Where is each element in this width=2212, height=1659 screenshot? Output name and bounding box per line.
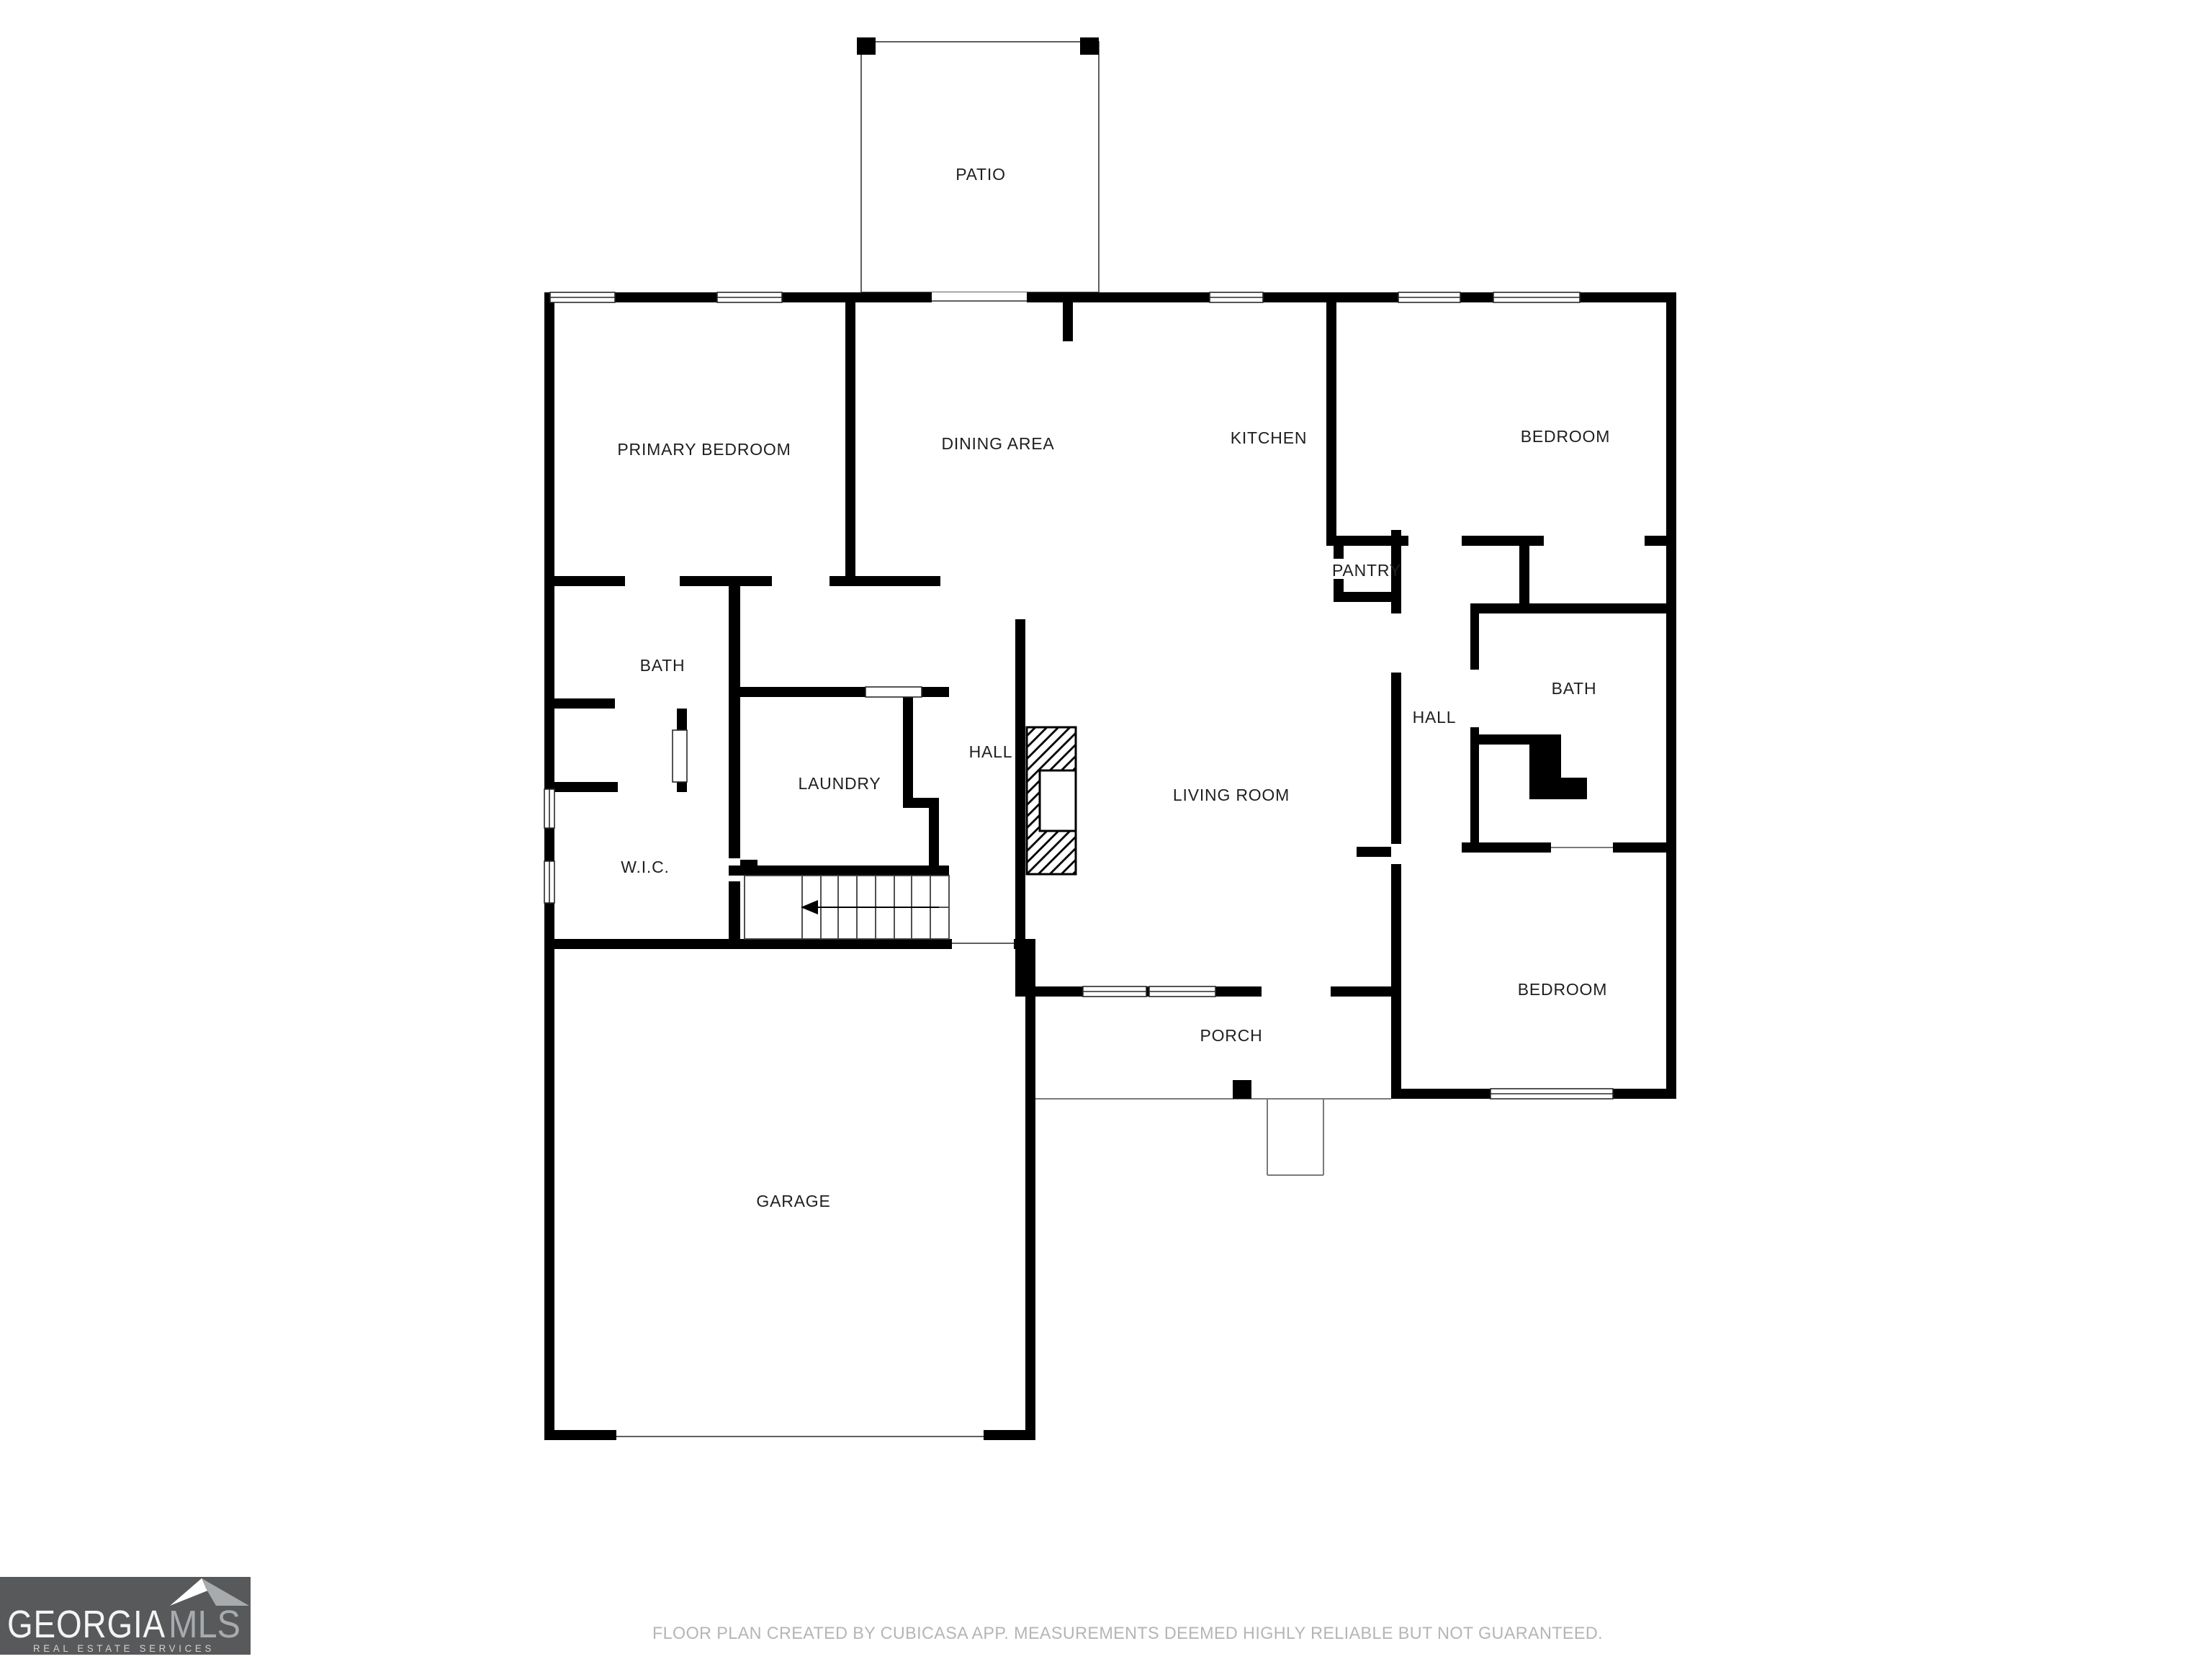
floor-plan-page: PATIO PRIMARY BEDROOM DINING AREA KITCHE… xyxy=(0,0,2212,1659)
room-label-laundry: LAUNDRY xyxy=(798,774,881,793)
window xyxy=(550,292,615,302)
room-label-bath-right: BATH xyxy=(1552,679,1597,698)
window xyxy=(1491,1089,1613,1099)
shower xyxy=(1529,734,1587,799)
patio-post-right xyxy=(1080,37,1099,55)
disclaimer-text: FLOOR PLAN CREATED BY CUBICASA APP. MEAS… xyxy=(652,1624,1603,1643)
room-label-porch: PORCH xyxy=(1200,1026,1262,1045)
window xyxy=(1493,292,1580,302)
entry-walkway xyxy=(1267,1099,1323,1175)
room-label-garage: GARAGE xyxy=(756,1192,830,1210)
window xyxy=(544,861,554,903)
porch-outline xyxy=(1035,1080,1391,1175)
floor-plan-svg: PATIO PRIMARY BEDROOM DINING AREA KITCHE… xyxy=(0,0,2212,1659)
patio-post-left xyxy=(857,37,876,55)
room-label-bedroom-bottom-right: BEDROOM xyxy=(1518,980,1607,999)
room-label-wic: W.I.C. xyxy=(621,858,669,876)
room-label-kitchen: KITCHEN xyxy=(1231,428,1308,447)
room-label-pantry: PANTRY xyxy=(1332,561,1401,580)
staircase xyxy=(745,876,949,939)
window xyxy=(717,292,782,302)
room-label-hall-left: HALL xyxy=(969,742,1013,761)
room-label-patio: PATIO xyxy=(956,165,1006,184)
georgia-mls-logo: GEORGIA MLS REAL ESTATE SERVICES xyxy=(0,1577,251,1655)
room-label-bath-left: BATH xyxy=(640,656,685,675)
window xyxy=(1083,986,1146,997)
pocket-door xyxy=(673,730,687,782)
room-label-primary-bedroom: PRIMARY BEDROOM xyxy=(617,440,791,459)
logo-brand-primary: GEORGIA xyxy=(7,1603,166,1646)
logo-brand-secondary: MLS xyxy=(168,1603,240,1646)
windows xyxy=(544,292,1613,1099)
room-label-dining-area: DINING AREA xyxy=(941,434,1054,453)
window xyxy=(544,789,554,828)
cased-opening xyxy=(866,687,922,697)
fireplace xyxy=(1027,727,1076,874)
window xyxy=(1210,292,1263,302)
room-label-living-room: LIVING ROOM xyxy=(1173,786,1290,804)
window xyxy=(1398,292,1460,302)
porch-column xyxy=(1233,1080,1251,1099)
interior-walls xyxy=(544,302,1676,1099)
room-label-hall-right: HALL xyxy=(1413,708,1457,727)
room-label-bedroom-top-right: BEDROOM xyxy=(1521,427,1610,446)
exterior-walls xyxy=(544,292,1676,1440)
window xyxy=(1149,986,1215,997)
logo-tagline: REAL ESTATE SERVICES xyxy=(33,1642,215,1654)
